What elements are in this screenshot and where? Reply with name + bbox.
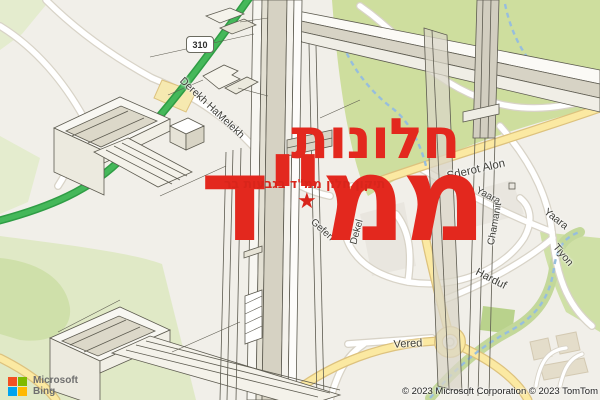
bing-wordmark: Microsoft Bing — [33, 376, 78, 397]
ms-square-red — [8, 377, 17, 386]
map-attribution: © 2023 Microsoft Corporation © 2023 TomT… — [402, 386, 598, 397]
star-icon: ★ — [297, 189, 317, 214]
ms-square-blue — [8, 387, 17, 396]
bing-wordmark-line2: Bing — [33, 387, 78, 398]
ms-square-green — [18, 377, 27, 386]
cad-channel-box-top-left — [54, 97, 192, 195]
microsoft-logo-icon — [8, 377, 27, 396]
bing-wordmark-line1: Microsoft — [33, 376, 78, 387]
route-310-shield: 310 — [186, 36, 214, 53]
overlay-title-line2: ממ"ד — [198, 143, 484, 255]
bing-branding: Microsoft Bing — [8, 376, 78, 397]
route-310-shield-number: 310 — [192, 40, 207, 50]
bing-map-screenshot: 310 Derekh HaMelekh Sderot Alon Yaara Ya… — [0, 0, 600, 400]
ms-square-yellow — [18, 387, 27, 396]
